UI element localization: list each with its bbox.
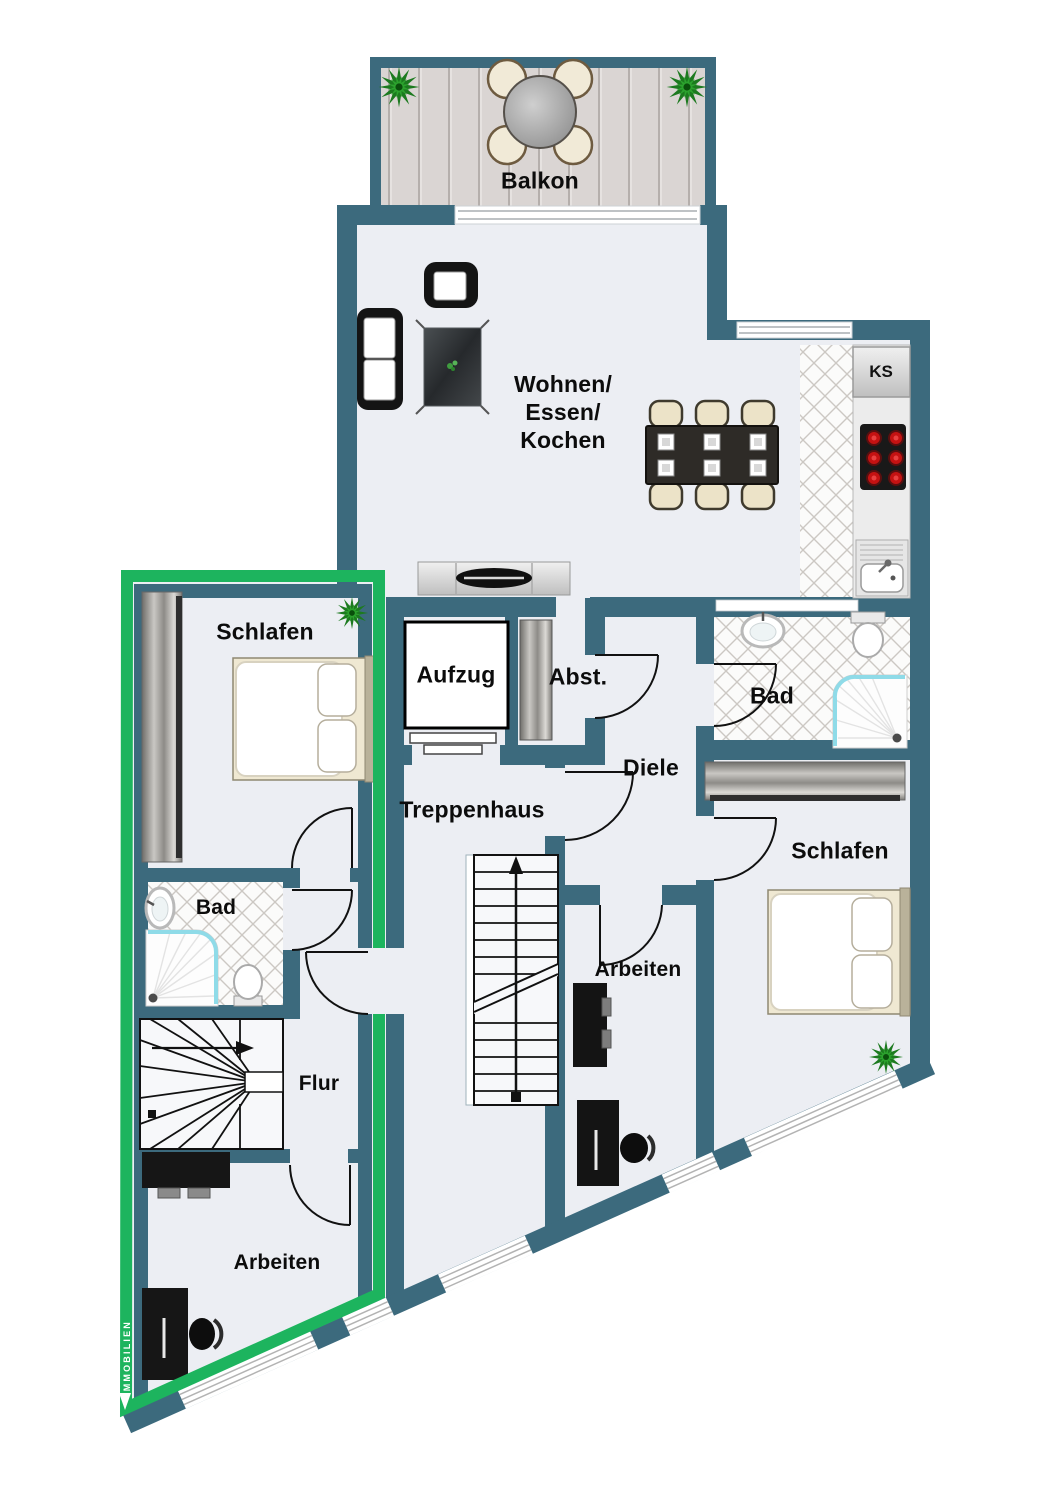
label-balkon: Balkon xyxy=(501,168,579,195)
shelf xyxy=(573,983,607,1067)
armchair xyxy=(424,262,478,308)
coffee-table xyxy=(416,320,489,414)
tv-lowboard xyxy=(418,562,570,595)
window-top-right xyxy=(737,322,852,338)
desk-chair xyxy=(189,1318,215,1350)
label-treppenhaus: Treppenhaus xyxy=(399,797,544,824)
stove xyxy=(860,424,906,490)
floorplan: Balkon Wohnen/ Essen/ Kochen KS Aufzug A… xyxy=(0,0,1060,1500)
shower xyxy=(833,675,907,748)
floorplan-drawing xyxy=(0,0,1060,1500)
balcony-table-set xyxy=(488,60,592,164)
shower xyxy=(146,930,218,1006)
label-diele: Diele xyxy=(623,755,679,782)
watermark-text: IMMOBILIEN xyxy=(122,1320,132,1396)
kitchen-sink xyxy=(856,540,908,596)
main-stairs xyxy=(466,855,558,1105)
label-abstellraum: Abst. xyxy=(549,664,608,691)
label-arbeiten-links: Arbeiten xyxy=(234,1251,321,1275)
storage-cabinet xyxy=(520,620,552,740)
label-wohnen-essen-kochen: Wohnen/ Essen/ Kochen xyxy=(514,370,612,454)
sideboard xyxy=(142,1152,230,1188)
double-bed xyxy=(768,888,910,1016)
toilet xyxy=(234,965,262,1006)
label-wohnen-line1: Wohnen/ xyxy=(514,370,612,398)
kitchen-tiles xyxy=(800,345,855,598)
label-wohnen-line2: Essen/ xyxy=(514,398,612,426)
label-ks: KS xyxy=(869,362,893,382)
sofa xyxy=(357,308,403,410)
dining-set xyxy=(646,401,778,509)
toilet xyxy=(851,612,885,657)
label-aufzug: Aufzug xyxy=(416,662,495,689)
label-wohnen-line3: Kochen xyxy=(514,426,612,454)
wardrobe xyxy=(705,762,905,800)
desk xyxy=(577,1100,619,1186)
entrance-opening xyxy=(354,948,408,1014)
balcony xyxy=(370,57,716,223)
label-bad-links: Bad xyxy=(196,896,236,920)
desk-chair xyxy=(620,1133,648,1163)
winder-stairs xyxy=(140,1019,283,1149)
label-flur: Flur xyxy=(299,1072,339,1096)
double-bed xyxy=(233,656,375,782)
label-schlafen-links: Schlafen xyxy=(216,619,313,646)
label-arbeiten-mitte: Arbeiten xyxy=(595,958,682,982)
kitchen-counter xyxy=(853,345,910,598)
bath-right-niche xyxy=(716,600,858,611)
label-bad-rechts: Bad xyxy=(750,683,794,710)
balcony-door xyxy=(455,206,700,224)
label-schlafen-rechts: Schlafen xyxy=(791,838,888,865)
